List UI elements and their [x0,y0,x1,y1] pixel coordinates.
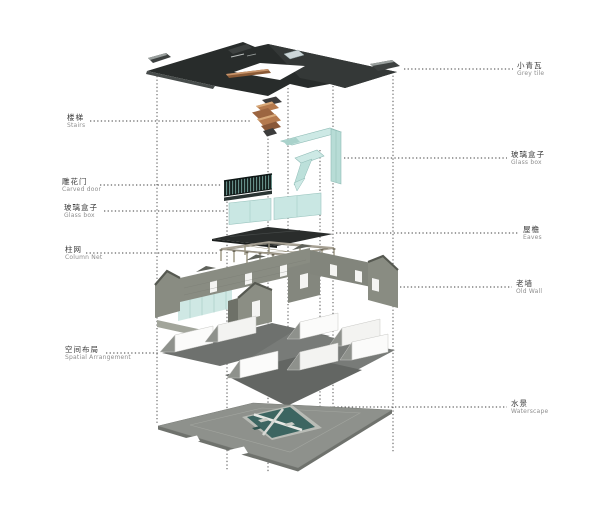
stairs-layer [252,97,282,137]
old-wall-right-gable-opening [372,278,379,292]
label-spatial-arrangement-en: Spatial Arrangement [65,355,131,362]
label-grey-tile: 小青瓦 Grey tile [517,62,544,78]
label-glass-box-left-en: Glass box [64,213,98,220]
old-wall-front-door-opening [252,300,260,318]
label-eaves-en: Eaves [523,235,542,242]
old-wall-center-opening [300,273,308,289]
waterscape-layer [158,403,392,472]
label-stairs: 楼梯 Stairs [67,114,85,130]
glass-panel-right [274,193,321,220]
label-waterscape: 水景 Waterscape [511,400,548,416]
label-column-net: 柱网 Column Net [65,246,102,262]
label-glass-box-left: 玻璃盒子 Glass box [64,204,98,220]
label-column-net-en: Column Net [65,255,102,262]
old-wall-left-gable [155,271,180,318]
exploded-axonometric-diagram: 楼梯 Stairs 雕花门 Carved door 玻璃盒子 Glass box… [0,0,600,518]
label-grey-tile-en: Grey tile [517,71,544,78]
label-waterscape-en: Waterscape [511,409,548,416]
label-eaves: 屋檐 Eaves [523,226,542,242]
label-carved-door: 雕花门 Carved door [62,178,101,194]
label-stairs-en: Stairs [67,123,85,130]
label-old-wall: 老墙 Old Wall [516,280,542,296]
glass-box-upper-layer [281,128,341,191]
label-glass-box-right: 玻璃盒子 Glass box [511,151,545,167]
label-old-wall-en: Old Wall [516,289,542,296]
roof-grey-tile-layer [146,42,400,99]
spatial-arrangement-layer [160,313,395,406]
label-spatial-arrangement: 空间布局 Spatial Arrangement [65,346,131,362]
label-carved-door-en: Carved door [62,187,101,194]
label-glass-box-right-en: Glass box [511,160,545,167]
carved-door-layer [224,174,272,201]
eaves-layer [212,227,333,248]
